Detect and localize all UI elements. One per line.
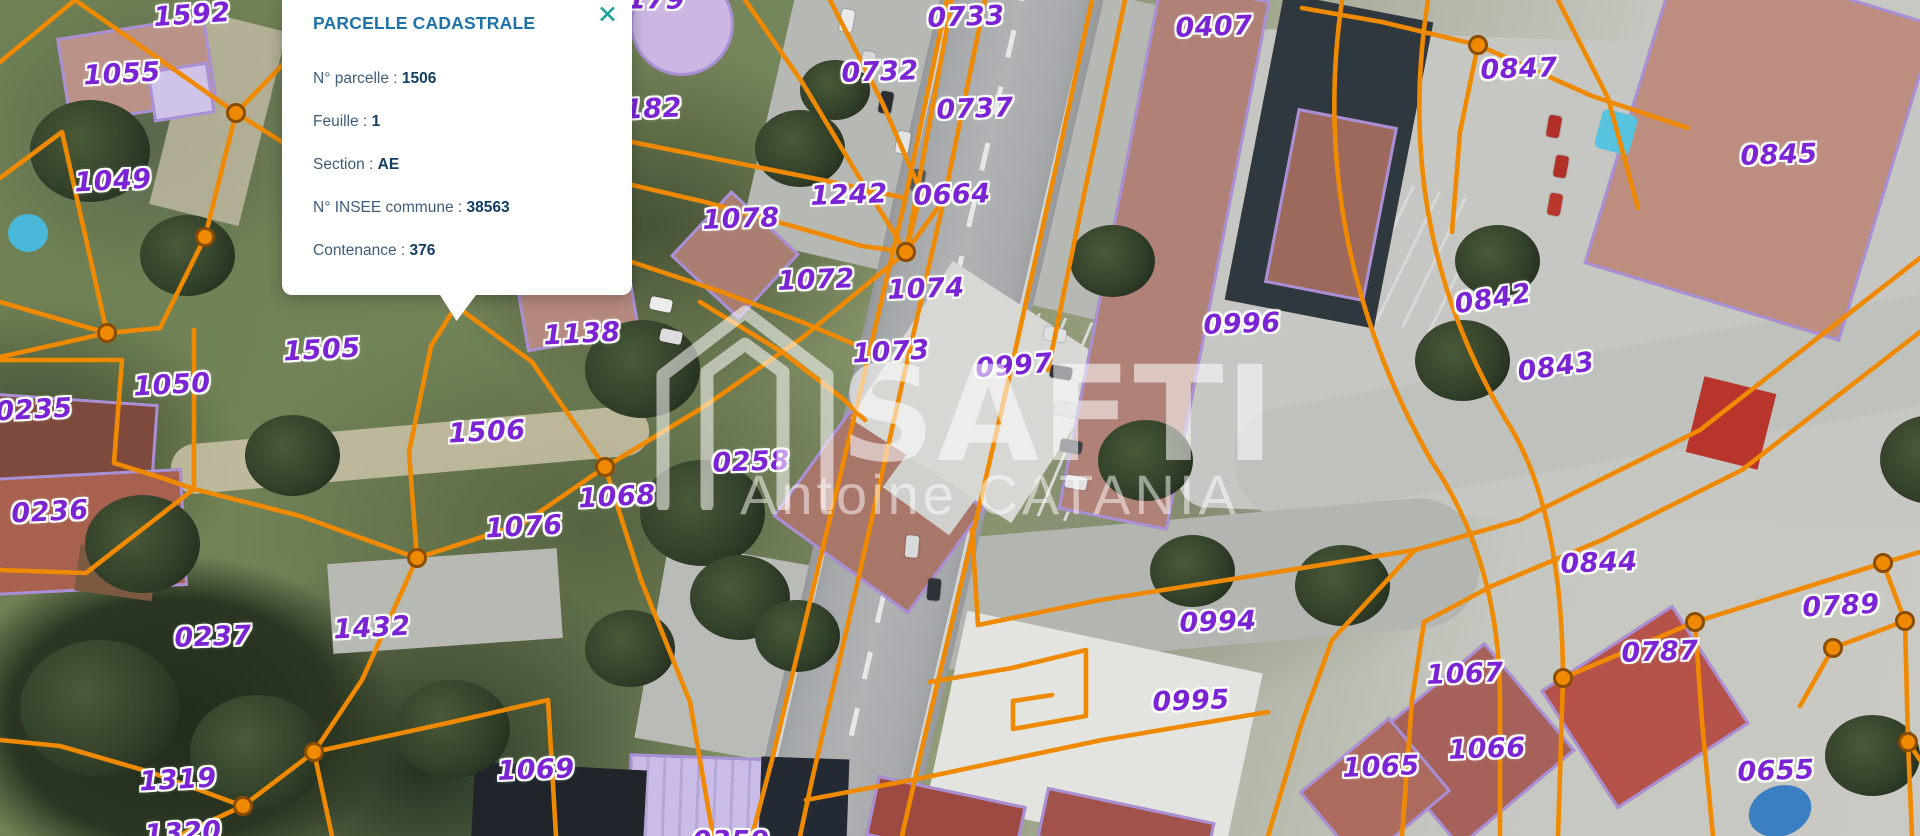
close-icon[interactable]: ✕: [595, 0, 620, 29]
parcel-label: 0237: [174, 620, 252, 654]
parcel-label: 0844: [1560, 546, 1638, 580]
field-separator: :: [389, 70, 402, 87]
parcel-label: 1073: [852, 335, 931, 370]
parcel-label: 1138: [543, 317, 622, 352]
popup-field: Feuille : 1: [313, 113, 380, 131]
popup-field: Contenance : 376: [313, 242, 435, 260]
field-label: Feuille: [313, 113, 359, 130]
popup-field: Section : AE: [313, 156, 399, 174]
parcel-label: 1592: [152, 0, 231, 33]
parcel-label: 1076: [485, 510, 564, 545]
popup-field: N° INSEE commune : 38563: [313, 199, 510, 217]
parcel-label: 1319: [139, 763, 218, 798]
parcel-label: 0733: [927, 0, 1005, 34]
field-label: N° INSEE commune: [313, 199, 454, 216]
parcel-label: 1065: [1342, 750, 1420, 784]
parcel-label: 0787: [1621, 635, 1699, 669]
field-separator: :: [454, 199, 467, 216]
parcel-label: 0737: [936, 92, 1014, 126]
parcel-info-popup: PARCELLE CADASTRALE ✕ N° parcelle : 1506…: [282, 0, 632, 295]
parcel-label: 1055: [83, 57, 162, 92]
parcel-label: 1432: [333, 611, 412, 646]
parcel-label: 1506: [448, 415, 527, 450]
parcel-label: 0359: [692, 826, 769, 836]
map-canvas[interactable]: 1791592105510490235105015050236150610681…: [0, 0, 1920, 836]
parcel-label: 0842: [1452, 278, 1533, 321]
parcel-label: 0843: [1516, 346, 1597, 387]
field-separator: :: [359, 113, 372, 130]
parcel-label: 1049: [74, 164, 153, 199]
parcel-label: 1072: [777, 263, 855, 297]
parcel-label: 0664: [913, 178, 991, 212]
field-separator: :: [365, 156, 378, 173]
field-value: 1506: [402, 70, 436, 87]
parcel-label: 1074: [887, 272, 965, 306]
field-label: Contenance: [313, 242, 397, 259]
field-label: N° parcelle: [313, 70, 389, 87]
parcel-label: 179: [627, 0, 685, 16]
parcel-label: 1066: [1448, 732, 1526, 766]
field-label: Section: [313, 156, 365, 173]
field-value: AE: [378, 156, 400, 173]
parcel-label: 1078: [702, 202, 780, 236]
popup-title: PARCELLE CADASTRALE: [313, 13, 535, 34]
parcel-label: 0997: [974, 348, 1053, 384]
parcel-label: 0995: [1152, 684, 1230, 718]
field-value: 376: [410, 242, 436, 259]
parcel-label: 1069: [497, 753, 575, 787]
parcel-label: 0845: [1740, 138, 1818, 172]
popup-field: N° parcelle : 1506: [313, 70, 436, 88]
parcel-label: 1505: [283, 333, 362, 368]
parcel-label: 1320: [144, 816, 223, 836]
parcel-label: 0789: [1802, 589, 1881, 624]
parcel-label: 0847: [1480, 52, 1558, 86]
parcel-label: 0994: [1179, 605, 1257, 639]
parcel-label: 1050: [133, 368, 212, 403]
field-separator: :: [397, 242, 410, 259]
parcel-label: 1242: [810, 178, 888, 212]
parcel-label: 0258: [712, 445, 790, 479]
parcel-label: 0996: [1203, 307, 1281, 341]
parcel-label: 1067: [1426, 657, 1504, 691]
parcel-label: 0407: [1175, 10, 1253, 44]
parcel-label: 0236: [11, 495, 90, 530]
parcel-label: 0655: [1737, 754, 1815, 788]
field-value: 38563: [467, 199, 510, 216]
field-value: 1: [372, 113, 381, 130]
parcel-label: 1068: [578, 480, 657, 515]
parcel-label: 0732: [841, 55, 919, 89]
parcel-label: 182: [624, 92, 683, 125]
parcel-label: 0235: [0, 393, 73, 428]
